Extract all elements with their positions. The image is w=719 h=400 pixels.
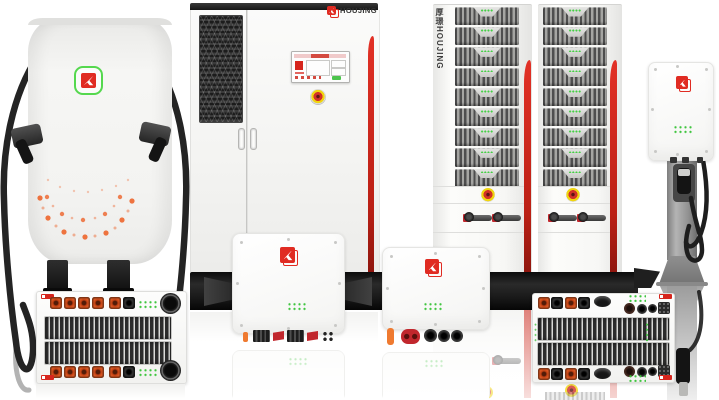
- wallbox-reflection: [382, 352, 490, 400]
- cable-gland: [697, 157, 703, 163]
- status-led-grid: [673, 125, 693, 135]
- multipin-connector: [658, 302, 670, 314]
- cursor-arrow-icon: [676, 76, 688, 89]
- cooling-fan-icon: [160, 293, 181, 314]
- terminal-block: [253, 330, 270, 342]
- status-led-grid: [628, 374, 646, 382]
- aux-terminals: [322, 331, 334, 342]
- dc-output-connector: [64, 366, 76, 378]
- brand-logo-icon: [425, 259, 439, 274]
- brand-badge: [41, 375, 54, 380]
- led-reflection: [424, 359, 445, 369]
- dc-output-connector: [92, 297, 104, 309]
- status-led-grid: [628, 294, 646, 302]
- handle-knob: [594, 296, 611, 307]
- terminal-row: [240, 329, 336, 343]
- dc-output-connector: [50, 297, 62, 309]
- vent-grille: [44, 316, 172, 340]
- status-led-grid: [138, 368, 157, 377]
- cable-gland: [670, 157, 677, 163]
- black-connector: [424, 329, 437, 342]
- red-dc-connector: [401, 329, 420, 344]
- status-led-grid: [138, 300, 157, 309]
- dc-output-connector: [78, 297, 90, 309]
- red-connector: [273, 331, 284, 341]
- black-connector: [551, 368, 563, 380]
- dc-output-connector: [92, 366, 104, 378]
- orange-terminal: [243, 332, 248, 342]
- cooling-fan-icon: [160, 360, 181, 381]
- brand-badge: [659, 294, 672, 299]
- cable-gland: [682, 157, 689, 163]
- black-connector: [438, 330, 450, 342]
- status-led-grid: [287, 302, 308, 312]
- screws: [654, 68, 657, 71]
- dc-output-connector: [64, 297, 76, 309]
- orange-terminal: [387, 328, 394, 345]
- side-led-strip: [534, 322, 537, 342]
- side-led-strip: [645, 322, 649, 344]
- cursor-arrow-icon: [280, 247, 295, 263]
- status-led-grid: [423, 302, 444, 312]
- red-connector: [307, 331, 318, 341]
- product-collage: HOUJING 厚璟HOUJING: [0, 0, 719, 400]
- black-connector: [578, 368, 590, 380]
- dc-output-connector: [109, 297, 121, 309]
- vent-grille: [537, 317, 670, 341]
- round-connector: [648, 367, 657, 376]
- connector-row: [385, 327, 485, 347]
- black-connector: [578, 297, 590, 309]
- screws: [390, 255, 393, 258]
- cursor-arrow-icon: [425, 259, 439, 274]
- brand-logo-icon: [676, 76, 688, 89]
- led-reflection: [288, 357, 309, 367]
- vent-grille: [44, 341, 172, 365]
- round-connector: [648, 304, 657, 313]
- module-reflection: [36, 384, 185, 400]
- black-connector: [123, 366, 135, 378]
- dc-output-connector: [565, 297, 577, 309]
- round-connector: [637, 304, 647, 314]
- handle-knob: [594, 368, 611, 379]
- brand-badge: [659, 375, 672, 380]
- round-connector: [624, 303, 635, 314]
- dc-output-connector: [538, 297, 550, 309]
- black-connector: [451, 330, 463, 342]
- dc-output-connector: [538, 368, 550, 380]
- dc-output-connector: [565, 368, 577, 380]
- black-connector: [551, 297, 563, 309]
- screws: [240, 241, 243, 244]
- dc-output-connector: [78, 366, 90, 378]
- brand-logo-icon: [280, 247, 295, 263]
- wallbox-reflection: [232, 350, 345, 400]
- black-connector: [123, 297, 135, 309]
- terminal-block: [287, 330, 304, 342]
- vent-grille: [537, 342, 670, 366]
- dc-output-connector: [109, 366, 121, 378]
